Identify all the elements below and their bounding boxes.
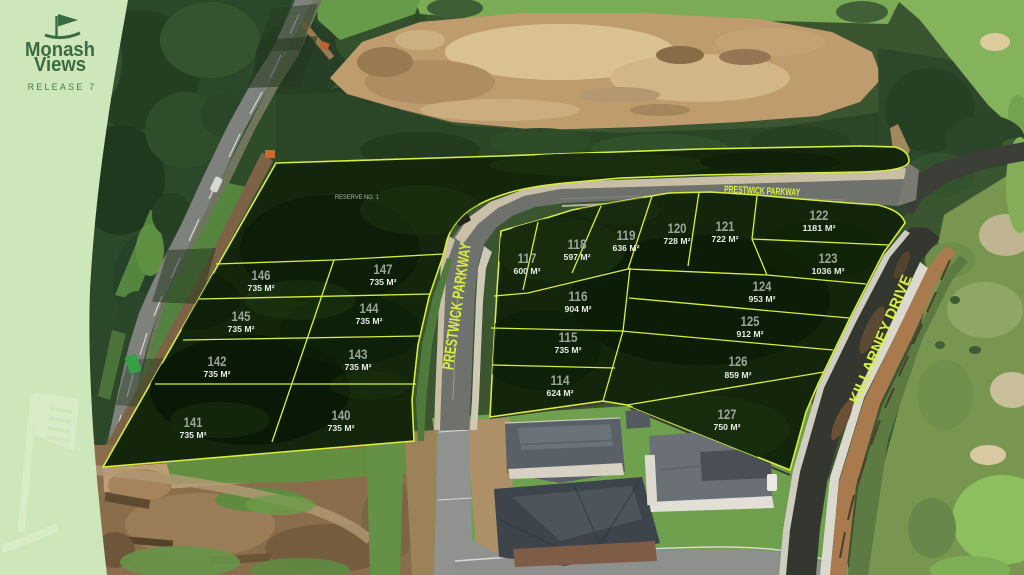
svg-text:122: 122	[810, 208, 829, 223]
svg-text:RELEASE 7: RELEASE 7	[28, 82, 97, 92]
svg-text:143: 143	[349, 347, 368, 362]
svg-text:750 M²: 750 M²	[714, 423, 741, 432]
svg-text:142: 142	[208, 354, 227, 369]
svg-text:600 M²: 600 M²	[514, 267, 541, 276]
svg-text:119: 119	[617, 228, 636, 243]
svg-text:953 M²: 953 M²	[749, 295, 776, 304]
svg-text:117: 117	[518, 251, 537, 266]
svg-text:Views: Views	[34, 54, 86, 76]
svg-text:735 M²: 735 M²	[370, 278, 397, 287]
svg-text:904 M²: 904 M²	[565, 305, 592, 314]
svg-text:624 M²: 624 M²	[547, 389, 574, 398]
svg-text:735 M²: 735 M²	[345, 363, 372, 372]
svg-text:1036 M²: 1036 M²	[812, 267, 845, 276]
svg-text:116: 116	[569, 289, 588, 304]
svg-text:735 M²: 735 M²	[204, 370, 231, 379]
svg-text:120: 120	[668, 221, 687, 236]
svg-text:735 M²: 735 M²	[328, 424, 355, 433]
svg-text:126: 126	[729, 354, 748, 369]
svg-text:597 M²: 597 M²	[564, 253, 591, 262]
svg-text:144: 144	[360, 301, 379, 316]
svg-text:735 M²: 735 M²	[356, 317, 383, 326]
svg-text:118: 118	[568, 237, 587, 252]
svg-text:121: 121	[716, 219, 735, 234]
svg-text:124: 124	[753, 279, 772, 294]
svg-text:146: 146	[252, 268, 271, 283]
svg-text:1181 M²: 1181 M²	[803, 224, 836, 233]
svg-text:115: 115	[559, 330, 578, 345]
svg-text:735 M²: 735 M²	[248, 284, 275, 293]
svg-text:735 M²: 735 M²	[228, 325, 255, 334]
svg-text:722 M²: 722 M²	[712, 235, 739, 244]
svg-text:728 M²: 728 M²	[664, 237, 691, 246]
svg-text:735 M²: 735 M²	[180, 431, 207, 440]
svg-text:735 M²: 735 M²	[555, 346, 582, 355]
svg-text:145: 145	[232, 309, 251, 324]
svg-text:141: 141	[184, 415, 203, 430]
svg-text:147: 147	[374, 262, 393, 277]
svg-text:123: 123	[819, 251, 838, 266]
svg-text:125: 125	[741, 314, 760, 329]
svg-text:127: 127	[718, 407, 737, 422]
svg-text:RESERVE NO. 1: RESERVE NO. 1	[335, 194, 379, 201]
svg-text:859 M²: 859 M²	[725, 371, 752, 380]
svg-text:912 M²: 912 M²	[737, 330, 764, 339]
svg-text:140: 140	[332, 408, 351, 423]
svg-text:636 M²: 636 M²	[613, 244, 640, 253]
svg-text:114: 114	[551, 373, 570, 388]
